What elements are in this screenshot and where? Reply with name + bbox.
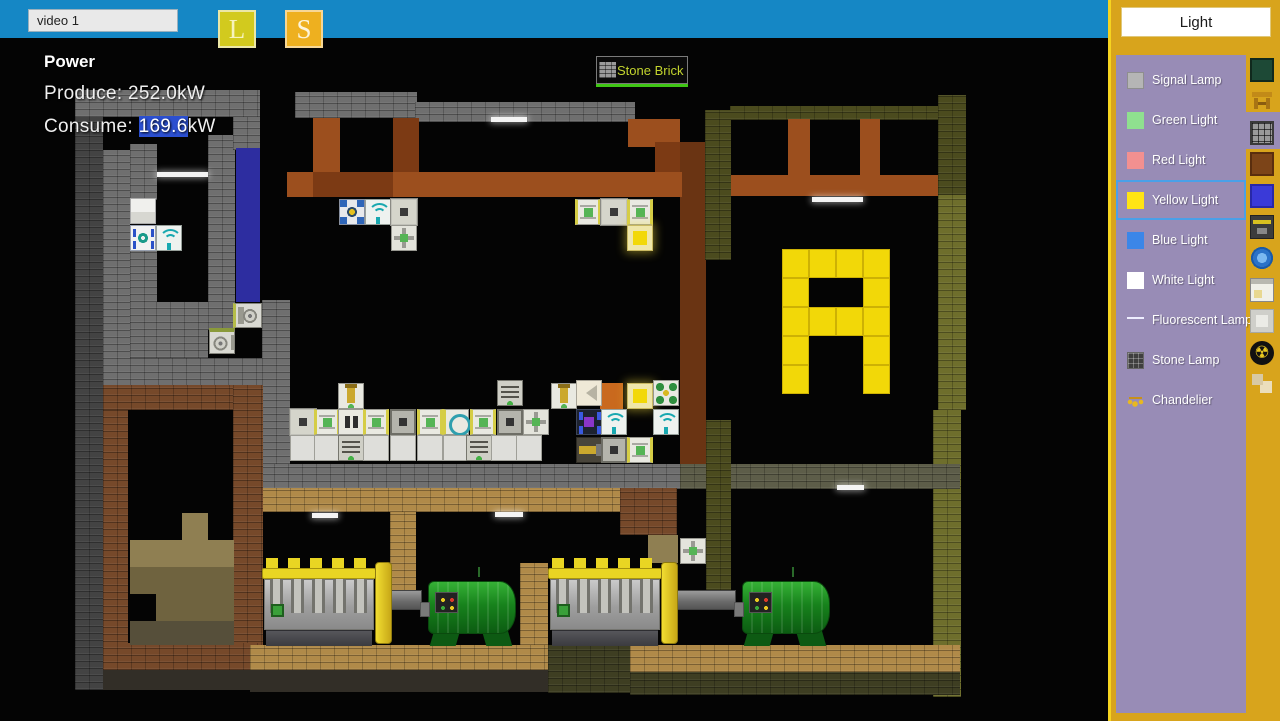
light-item-label: Fluorescent Lamp [1152,313,1252,327]
electric-generator [734,576,836,648]
wood-beam [313,172,393,197]
bluebar-machine [130,225,156,251]
stone-brick-block [130,144,157,200]
dark-stone-block [75,117,103,690]
orange-block [600,383,623,409]
consume-prefix: Consume: [44,116,139,137]
wifi-machine [156,225,182,251]
category-tab-furniture[interactable] [1250,89,1274,113]
category-tab-window[interactable] [1250,278,1274,302]
yellow-lamp-tile [863,278,890,307]
game-screen: Power Produce: 252.0kW Consume: 169.6kW … [0,0,1280,721]
stone-brick-block [156,302,208,358]
whitebox-machine [130,198,156,224]
darksq-machine [497,409,523,435]
wood-beam [788,119,810,176]
category-tab-blue[interactable] [1250,184,1274,208]
dirt-block [156,594,234,621]
electric-generator [420,576,522,648]
generator-ant [478,567,480,577]
olive-brick-block [938,95,966,195]
splitter-machine [314,409,340,435]
light-item-white-light[interactable]: White Light [1116,260,1246,300]
light-item-label: Red Light [1152,153,1206,167]
generator-stub [420,602,430,617]
yellow-lamp-tile [782,249,809,278]
plain-machine [290,435,316,461]
dirt-block [130,621,234,645]
fluorescent-lamp [157,172,208,177]
circle2-machine [209,328,235,354]
tan-brick-block [390,512,416,592]
engine-base [552,629,658,646]
olive-floor-block [630,672,960,695]
doubleslot-machine [338,409,364,435]
light-item-yellow-light[interactable]: Yellow Light [1116,180,1246,220]
light-item-label: Chandelier [1152,393,1212,407]
wood-beam [730,175,943,196]
generator-ant [792,567,794,577]
yellow-lamp-tile [863,307,890,336]
pistonh-machine [576,437,602,463]
drive-shaft [672,590,736,610]
tan-brick-block [520,563,548,645]
lampglow-machine [627,225,653,251]
brown-brick-block [620,488,677,535]
light-item-blue-light[interactable]: Blue Light [1116,220,1246,260]
olive-floor-block [548,645,632,693]
blue-column [236,148,260,302]
category-tab-gear[interactable] [1250,246,1274,270]
light-item-label: Blue Light [1152,233,1208,247]
wood-beam [313,118,340,174]
category-tab-machine[interactable] [1250,215,1274,239]
darksq-machine [390,409,416,435]
stone-swatch [1127,352,1144,369]
engine-green [271,604,284,617]
top-toolbar: L S [0,0,1108,38]
chandelier-swatch [1127,392,1144,409]
red-swatch [1127,152,1144,169]
arrow4-machine [680,538,706,564]
yellow-lamp-tile [809,249,836,278]
yellow-swatch [1127,192,1144,209]
funnel-machine [576,380,602,406]
yellow-lamp-tile [782,336,809,365]
yellow-lamp-tile [836,307,863,336]
dirt-block [130,540,234,567]
shadow-block [103,670,260,690]
plain-machine [314,435,340,461]
tan-brick-block [262,488,622,512]
bluecorner-machine [339,199,365,225]
plain-machine [363,435,389,461]
light-item-label: White Light [1152,273,1215,287]
stone-brick-block [130,250,157,358]
light-item-green-light[interactable]: Green Light [1116,100,1246,140]
piston-machine [338,383,364,409]
engine-rail [262,568,376,579]
shadow-block [250,670,548,692]
splitter-machine [363,409,389,435]
wifi-machine [653,409,679,435]
yellow-lamp-tile [782,278,809,307]
diesel-engine [262,558,392,648]
plain-machine [516,435,542,461]
plain-machine [390,435,416,461]
stone-brick-block [262,300,290,464]
olive-brick-block [938,195,966,410]
olive-brick-block [706,420,731,590]
yellow-lamp-tile [782,365,809,394]
category-tab-plate[interactable] [1250,309,1274,333]
purple-machine [576,409,602,435]
lined-machine [497,380,523,406]
wifi-machine [365,199,391,225]
fluorescent-lamp [812,197,863,202]
brown-brick-block [103,385,128,670]
arrow4-machine [391,225,417,251]
green-swatch [1127,112,1144,129]
piston-machine [551,383,577,409]
fluorescent-lamp [495,512,523,517]
circle-machine [233,303,262,328]
category-tab-nature[interactable] [1250,58,1274,82]
plain-machine [417,435,443,461]
graysq-machine [391,199,417,225]
white-swatch [1127,272,1144,289]
consume-suffix: kW [188,116,216,137]
light-item-stone-lamp[interactable]: Stone Lamp [1116,340,1246,380]
category-tab-wood[interactable] [1250,152,1274,176]
light-item-label: Green Light [1152,113,1217,127]
light-item-signal-lamp[interactable]: Signal Lamp [1116,60,1246,100]
load-button[interactable]: L [218,10,256,48]
olive-brick-block [730,106,943,120]
tealgear-machine [443,409,469,435]
signal-swatch [1127,72,1144,89]
dirt-block [182,513,208,540]
category-tab-blocks[interactable] [1250,372,1274,396]
splitter-machine [575,199,601,225]
stone-brick-block [260,464,680,489]
generator-panel [749,592,772,613]
brown-brick-block [103,643,260,670]
power-produce: Produce: 252.0kW [44,83,216,105]
light-item-chandelier[interactable]: Chandelier [1116,380,1246,420]
stone-brick-icon [599,62,616,78]
wood-column [680,142,706,464]
blue-swatch [1127,232,1144,249]
save-name-input[interactable] [28,9,178,32]
light-item-label: Stone Lamp [1152,353,1219,367]
lined-machine [466,435,492,461]
engine-green [557,604,570,617]
engine-fly [661,562,678,644]
generator-stub [734,602,744,617]
engine-cyls [270,579,370,613]
generator-panel [435,592,458,613]
category-title-label: Light [1180,14,1213,31]
light-item-label: Yellow Light [1152,193,1218,207]
fluorescent-lamp [837,485,864,490]
splitter-machine [470,409,496,435]
green4-machine [653,380,679,406]
yellow-lamp-tile [863,365,890,394]
stone-brick-block [233,117,260,150]
power-consume: Consume: 169.6kW [44,116,216,138]
yellow-lamp-tile [809,307,836,336]
consume-value-highlight: 169.6 [139,116,188,137]
wood-beam [860,119,880,176]
category-title: Light [1121,7,1271,37]
power-panel: Power Produce: 252.0kW Consume: 169.6kW [44,52,216,138]
yellow-lamp-tile [863,336,890,365]
diesel-engine [548,558,678,648]
darksq-machine [601,437,627,463]
tan-brick-block [630,645,960,672]
olive-brick-block [705,110,731,260]
lampglow-machine [627,383,653,409]
graysq-machine [290,409,316,435]
brown-brick-block [233,385,263,670]
power-title: Power [44,52,216,72]
plain-machine [491,435,517,461]
light-item-red-light[interactable]: Red Light [1116,140,1246,180]
build-sidebar: Light Signal LampGreen LightRed LightYel… [1108,0,1280,721]
yellow-lamp-tile [782,307,809,336]
light-item-fluorescent-lamp[interactable]: Fluorescent Lamp [1116,300,1246,340]
wifi-machine [601,409,627,435]
engine-base [266,629,372,646]
engine-rail [548,568,662,579]
category-tab-lamp[interactable] [1250,121,1274,145]
splitter-machine [417,409,443,435]
stone-brick-block [295,92,417,118]
fluorescent-lamp [491,117,527,122]
lined-machine [338,435,364,461]
stone-brick-block [103,150,130,387]
splitter-machine [627,437,653,463]
fluorescent-swatch [1127,312,1144,329]
block-tooltip: Stone Brick [596,56,688,84]
arrow4-machine [523,409,549,435]
yellow-lamp-tile [836,249,863,278]
graysq-machine [601,199,627,225]
save-button[interactable]: S [285,10,323,48]
engine-cyls [556,579,656,613]
tooltip-label: Stone Brick [617,63,683,78]
splitter-machine [627,199,653,225]
stone-brick-block [208,135,235,330]
tan-brick-block [250,645,550,670]
category-tab-radiation[interactable]: ☢ [1250,341,1274,365]
light-items-panel: Signal LampGreen LightRed LightYellow Li… [1116,55,1246,713]
light-item-label: Signal Lamp [1152,73,1222,87]
dirt-block [130,567,234,594]
yellow-lamp-tile [863,249,890,278]
engine-fly [375,562,392,644]
fluorescent-lamp [312,513,338,518]
